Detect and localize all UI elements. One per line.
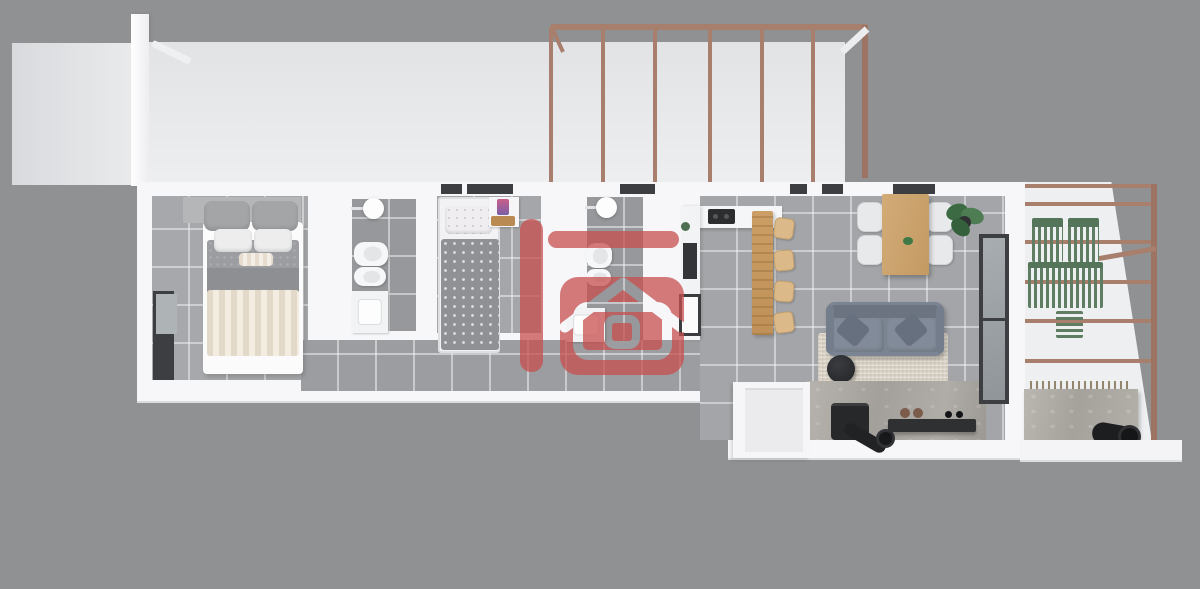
wall-knob [913,408,923,418]
bar-stool [773,249,795,272]
pillow [252,201,298,231]
terrace-bottom-wall [1020,440,1182,462]
bedroom-1-window [153,291,174,380]
wood-tray [491,216,515,226]
entry-volume [733,382,810,458]
dining-chair [857,202,884,232]
wall-shelf [888,419,976,432]
bed-fold [207,268,299,292]
window-icon [790,184,807,194]
pergola-bar [1025,202,1155,206]
pergola-bar [1025,319,1155,323]
round-coffee-table [827,355,855,383]
green-side-table [1056,311,1083,338]
upper-terrace-left-wall [131,14,149,186]
upper-terrace-left-floor [12,43,131,185]
sofa-armrest [826,306,834,353]
pergola-post [1151,184,1157,440]
cooktop [708,209,735,224]
window-icon [441,184,462,194]
pergola-bar [1025,184,1155,188]
bidet [354,267,386,286]
wall-knob [900,408,910,418]
shelf-item [956,411,963,418]
glass-door [979,234,1009,404]
bar-stool [773,217,796,241]
window-pane [156,294,177,334]
green-slatted-sofa [1028,262,1103,308]
vanity-sink [352,291,388,333]
breakfast-bar [752,211,773,335]
patterned-duvet [441,239,499,350]
house-logo-icon [515,215,687,377]
window-icon [620,184,655,194]
table-plant [903,237,913,245]
window-icon [893,184,935,194]
accent-cushion [239,253,273,266]
pillow [204,201,250,231]
dining-chair [857,235,884,265]
bar-stool [773,311,796,335]
sofa [826,302,944,356]
toy [497,199,509,215]
sofa-armrest [936,306,944,353]
shower-head-icon [363,198,384,219]
basin [358,299,382,325]
window-icon [822,184,843,194]
pergola-frame [540,16,880,191]
pillow [254,229,292,252]
pillow [445,206,492,234]
floor-plan-render [0,0,1200,589]
window-icon [467,184,513,194]
door-mullion [983,318,1005,321]
pillow [214,229,252,252]
bar-stool [773,280,794,302]
green-slatted-chair [1032,218,1063,262]
shelf-item [945,411,952,418]
toilet-bowl [363,246,382,261]
green-slatted-chair [1068,218,1099,262]
dining-chair [926,235,953,265]
toilet [354,242,388,266]
bidet-bowl [363,270,381,282]
striped-blanket [207,290,299,356]
entry-panel [745,388,803,452]
dining-table [882,194,929,275]
pergola-bar [1025,359,1155,363]
